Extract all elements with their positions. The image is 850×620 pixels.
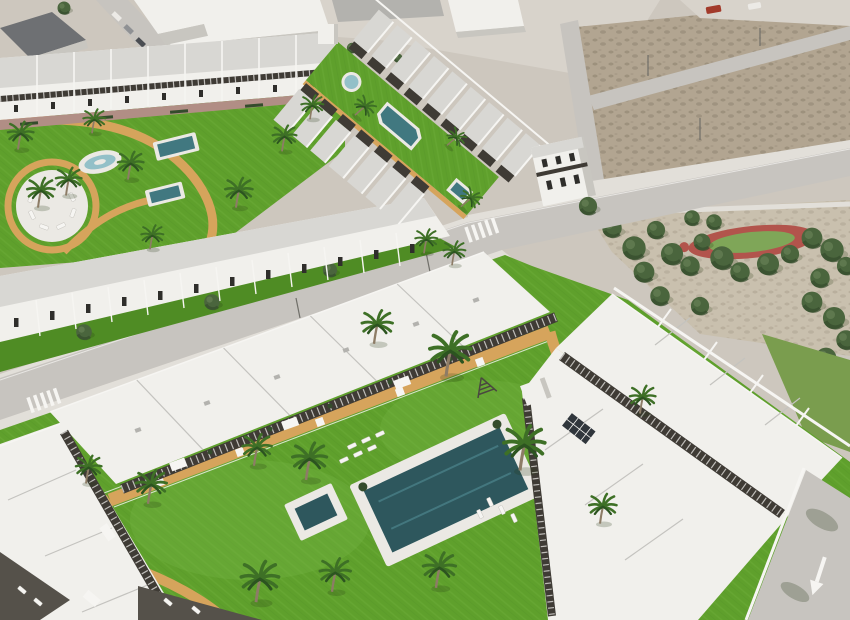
strip-end-building-shadow <box>334 24 338 44</box>
aerial-render: Aerial 3D render of a new residential de… <box>0 0 850 620</box>
development-render: Aerial 3D render of a new residential de… <box>0 0 850 620</box>
